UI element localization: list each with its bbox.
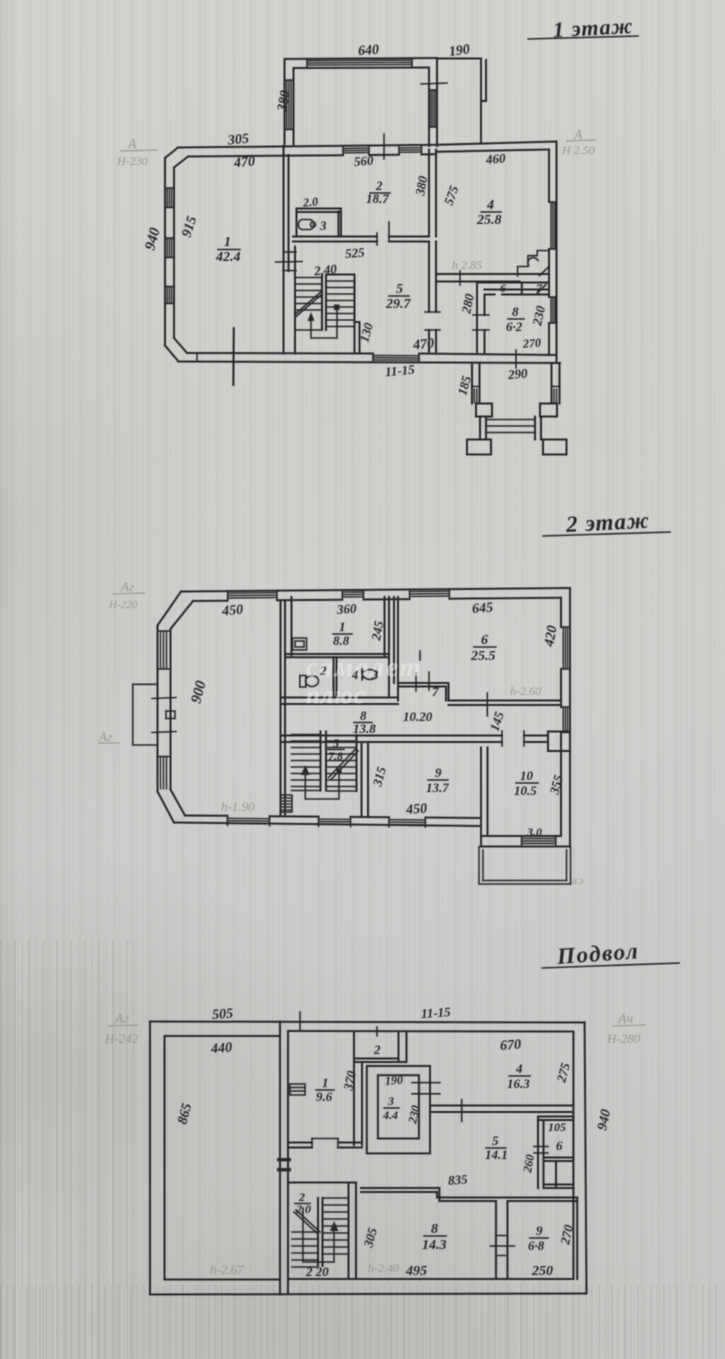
svg-text:6: 6 bbox=[500, 281, 506, 295]
svg-text:1: 1 bbox=[322, 1075, 329, 1090]
svg-text:29.7: 29.7 bbox=[385, 297, 412, 312]
svg-text:3.0: 3.0 bbox=[526, 825, 542, 839]
svg-text:105: 105 bbox=[548, 1120, 566, 1134]
svg-text:5: 5 bbox=[333, 736, 339, 750]
svg-text:4: 4 bbox=[486, 198, 494, 213]
svg-text:1: 1 bbox=[224, 235, 231, 250]
svg-text:А: А bbox=[127, 137, 137, 152]
svg-text:3: 3 bbox=[319, 218, 327, 233]
svg-text:575: 575 bbox=[441, 183, 462, 207]
svg-text:505: 505 bbox=[212, 1007, 234, 1023]
svg-text:25.5: 25.5 bbox=[470, 649, 496, 664]
svg-text:h-2.40: h-2.40 bbox=[368, 1261, 399, 1275]
svg-text:230: 230 bbox=[405, 1104, 423, 1125]
svg-text:2: 2 bbox=[373, 1042, 381, 1057]
svg-text:Аг: Аг bbox=[98, 729, 112, 744]
svg-text:5: 5 bbox=[396, 282, 403, 297]
svg-text:18.7: 18.7 bbox=[366, 191, 389, 206]
svg-text:h-2.67: h-2.67 bbox=[210, 1262, 244, 1277]
svg-text:3: 3 bbox=[371, 667, 379, 682]
svg-text:h 2.85: h 2.85 bbox=[452, 258, 482, 272]
svg-text:4.4: 4.4 bbox=[382, 1108, 398, 1122]
svg-text:640: 640 bbox=[358, 43, 380, 59]
svg-text:450: 450 bbox=[221, 603, 244, 620]
svg-text:3: 3 bbox=[387, 1094, 394, 1108]
svg-text:Н-242: Н-242 bbox=[104, 1031, 139, 1046]
svg-text:Аг: Аг bbox=[114, 1012, 130, 1027]
svg-text:230: 230 bbox=[529, 304, 548, 328]
svg-text:940: 940 bbox=[595, 1108, 614, 1132]
svg-text:940: 940 bbox=[142, 226, 163, 252]
svg-text:250: 250 bbox=[531, 1264, 553, 1279]
svg-text:Н 2.50: Н 2.50 bbox=[561, 143, 595, 157]
svg-text:460: 460 bbox=[484, 150, 506, 166]
svg-text:420: 420 bbox=[542, 624, 561, 648]
svg-text:7: 7 bbox=[432, 684, 439, 699]
svg-text:42.4: 42.4 bbox=[215, 250, 241, 265]
svg-text:Ач: Ач bbox=[617, 1012, 634, 1027]
svg-text:835: 835 bbox=[448, 1171, 469, 1187]
svg-text:470: 470 bbox=[411, 336, 434, 353]
svg-text:9.6: 9.6 bbox=[316, 1089, 333, 1104]
svg-text:190: 190 bbox=[385, 1073, 404, 1088]
svg-text:8.8: 8.8 bbox=[333, 633, 350, 648]
svg-text:Н-280: Н-280 bbox=[606, 1031, 641, 1046]
svg-text:8: 8 bbox=[431, 1222, 438, 1237]
svg-text:25.8: 25.8 bbox=[476, 213, 502, 228]
svg-text:Н-230: Н-230 bbox=[116, 154, 148, 168]
svg-text:11-15: 11-15 bbox=[420, 1004, 451, 1021]
svg-text:290: 290 bbox=[506, 365, 528, 382]
svg-text:495: 495 bbox=[405, 1264, 427, 1279]
svg-text:13.7: 13.7 bbox=[426, 780, 449, 795]
svg-text:h-2.60: h-2.60 bbox=[510, 684, 541, 698]
svg-text:13.8: 13.8 bbox=[353, 721, 376, 736]
svg-text:315: 315 bbox=[369, 765, 389, 789]
svg-text:280: 280 bbox=[458, 292, 477, 316]
svg-text:10.20: 10.20 bbox=[403, 709, 433, 724]
svg-text:2.40: 2.40 bbox=[312, 261, 338, 278]
svg-text:14.1: 14.1 bbox=[485, 1147, 508, 1162]
svg-text:6: 6 bbox=[481, 633, 488, 648]
svg-text:440: 440 bbox=[210, 1041, 233, 1057]
svg-text:7: 7 bbox=[536, 281, 543, 295]
svg-text:6: 6 bbox=[556, 1138, 563, 1153]
svg-text:5: 5 bbox=[492, 1133, 499, 1148]
svg-text:305: 305 bbox=[226, 132, 249, 149]
svg-text:450: 450 bbox=[405, 802, 428, 818]
svg-text:h-1.90: h-1.90 bbox=[221, 799, 255, 814]
svg-text:865: 865 bbox=[175, 1102, 195, 1126]
svg-text:260: 260 bbox=[520, 1153, 537, 1174]
svg-text:915: 915 bbox=[180, 215, 201, 240]
svg-text:2: 2 bbox=[319, 663, 327, 678]
svg-text:355: 355 bbox=[546, 773, 566, 797]
svg-text:10.5: 10.5 bbox=[514, 783, 537, 798]
svg-text:2 20: 2 20 bbox=[305, 1264, 329, 1279]
svg-text:645: 645 bbox=[472, 601, 494, 617]
svg-text:305: 305 bbox=[360, 1226, 380, 1250]
svg-text:9: 9 bbox=[435, 765, 442, 780]
svg-text:14.3: 14.3 bbox=[422, 1238, 447, 1253]
svg-text:Аг: Аг bbox=[120, 579, 134, 594]
svg-text:145: 145 bbox=[487, 709, 507, 733]
svg-text:11-15: 11-15 bbox=[384, 362, 415, 380]
svg-text:4: 4 bbox=[515, 1061, 523, 1076]
svg-text:10: 10 bbox=[520, 768, 534, 783]
svg-text:16.3: 16.3 bbox=[507, 1076, 530, 1091]
svg-text:275: 275 bbox=[553, 1061, 573, 1085]
svg-text:плюс: плюс bbox=[306, 682, 366, 709]
svg-text:4: 4 bbox=[351, 667, 359, 682]
svg-text:8: 8 bbox=[512, 304, 519, 319]
svg-text:а.з: а.з bbox=[572, 876, 584, 887]
svg-text:360: 360 bbox=[335, 601, 357, 617]
svg-text:6·2: 6·2 bbox=[506, 319, 523, 334]
svg-text:560: 560 bbox=[353, 153, 374, 169]
svg-text:380: 380 bbox=[412, 174, 430, 197]
svg-text:270: 270 bbox=[522, 336, 542, 351]
svg-text:Н-220: Н-220 bbox=[108, 599, 138, 611]
svg-text:670: 670 bbox=[500, 1038, 522, 1054]
svg-text:7.8: 7.8 bbox=[328, 749, 343, 763]
svg-text:525: 525 bbox=[345, 245, 366, 261]
svg-text:900: 900 bbox=[188, 679, 209, 705]
svg-text:2.0: 2.0 bbox=[301, 194, 318, 209]
svg-text:2.0: 2.0 bbox=[295, 1202, 311, 1216]
svg-text:370: 370 bbox=[340, 1069, 359, 1093]
svg-text:9: 9 bbox=[536, 1223, 543, 1238]
svg-text:470: 470 bbox=[232, 154, 255, 171]
svg-text:1: 1 bbox=[339, 619, 346, 634]
svg-text:6·8: 6·8 bbox=[528, 1238, 545, 1253]
svg-text:190: 190 bbox=[448, 42, 471, 60]
